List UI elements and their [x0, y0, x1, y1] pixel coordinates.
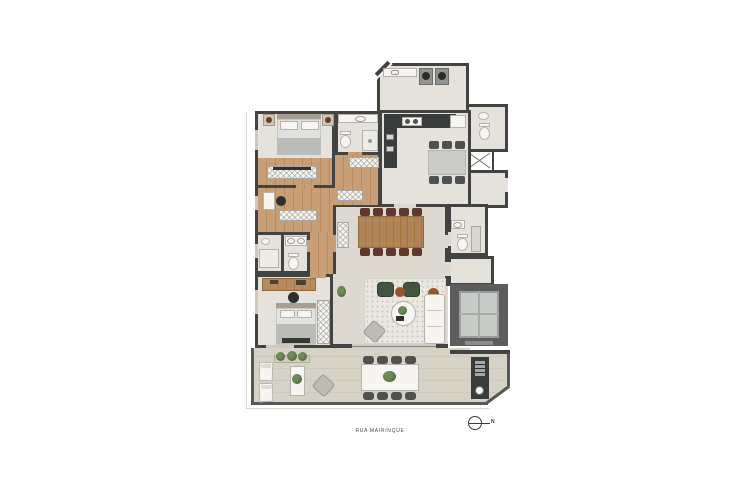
- planter-plant: [276, 352, 285, 361]
- lamp-icon: [325, 117, 331, 123]
- shaft-x-icon: [468, 152, 491, 169]
- elevator-door: [465, 341, 493, 345]
- bath3-toilet-bowl: [288, 257, 299, 270]
- terrace-chair: [377, 392, 388, 400]
- coffee-table-plant: [398, 306, 407, 315]
- table-centerpiece-plant: [383, 371, 396, 382]
- hall-desk-chair: [276, 196, 286, 206]
- north-line: [469, 423, 490, 424]
- terrace-chair: [405, 392, 416, 400]
- powder-room: [448, 204, 488, 256]
- kitchen-chair: [429, 141, 439, 149]
- bed2-foot-bench: [282, 338, 310, 343]
- terrace-chair: [405, 356, 416, 364]
- laundry-sink: [391, 70, 399, 75]
- dining-chair: [386, 208, 396, 216]
- entry-foyer: [466, 170, 508, 208]
- living-plant: [337, 286, 346, 297]
- bed2-pillow: [280, 310, 295, 318]
- powder-cabinet: [471, 226, 481, 252]
- bath2-sink: [261, 238, 270, 245]
- bbq-sink: [475, 386, 484, 395]
- laundry-counter: [383, 68, 417, 77]
- kitchen-chair: [455, 141, 465, 149]
- oven-icon: [386, 146, 394, 152]
- tv-icon: [273, 167, 311, 170]
- north-label: N: [491, 419, 495, 425]
- terrace-chair: [377, 356, 388, 364]
- terrace-chair: [391, 392, 402, 400]
- hall-desk: [263, 192, 275, 210]
- elevator-car-line: [478, 291, 480, 338]
- dining-chair: [386, 248, 396, 256]
- sofa-cushion-line: [427, 310, 442, 311]
- dining-chair: [360, 248, 370, 256]
- sliding-door-line: [352, 346, 436, 347]
- bed2-pillow: [297, 310, 312, 318]
- bath3-sink: [297, 238, 305, 244]
- sofa-cushion-line: [427, 326, 442, 327]
- living-sideboard: [337, 222, 349, 248]
- wardrobe-cabinet: [317, 300, 330, 344]
- bath3-sink: [287, 238, 295, 244]
- terrace-railing-right: [507, 352, 510, 386]
- shower-drain-icon: [368, 139, 372, 143]
- bedroom2-desk-chair: [288, 292, 299, 303]
- dryer-drum-icon: [438, 72, 446, 80]
- sofa: [424, 294, 445, 344]
- dining-chair: [399, 248, 409, 256]
- wall-segment: [281, 235, 284, 271]
- lot-line-left: [246, 112, 247, 408]
- floorplan-page: RUA MAIRINQUE N: [0, 0, 750, 480]
- window-opening: [255, 244, 258, 258]
- kitchen-chair: [455, 176, 465, 184]
- planter-plant: [287, 351, 297, 361]
- kitchen-chair: [429, 176, 439, 184]
- window-opening: [255, 196, 258, 210]
- window-opening: [255, 290, 258, 314]
- armchair-green: [377, 282, 394, 297]
- kitchen-chair: [442, 141, 452, 149]
- hallway-living-opening: [333, 235, 336, 252]
- bath2-shower: [259, 249, 279, 268]
- armchair-green: [403, 282, 420, 297]
- master-sink: [355, 116, 366, 122]
- lounger-pillow: [261, 364, 271, 368]
- oven-icon: [386, 134, 394, 140]
- lounger-pillow: [261, 385, 271, 389]
- washer-drum-icon: [422, 72, 430, 80]
- master-bed-blanket: [277, 138, 321, 155]
- terrace-railing-left: [251, 348, 254, 405]
- breakfast-table: [428, 150, 466, 175]
- dining-chair: [373, 208, 383, 216]
- wardrobe-cabinet: [337, 190, 363, 201]
- elevator-hall: [448, 256, 494, 286]
- hall-door-opening: [448, 262, 451, 276]
- planter-plant: [298, 352, 307, 361]
- desk-item: [270, 280, 278, 284]
- dining-chair: [412, 208, 422, 216]
- foyer-door-opening: [505, 178, 508, 192]
- dining-table: [358, 216, 424, 248]
- console-plant: [292, 374, 302, 384]
- grill-icon: [475, 361, 485, 376]
- fridge: [450, 115, 466, 128]
- street-label: RUA MAIRINQUE: [330, 428, 430, 434]
- window-opening: [255, 130, 258, 150]
- bath-door-opening: [307, 240, 310, 252]
- wall-segment: [333, 205, 336, 235]
- terrace-chair: [391, 356, 402, 364]
- burner-icon: [413, 119, 418, 124]
- side-table-rust: [395, 287, 405, 297]
- terrace-railing-bottom: [251, 402, 488, 405]
- dining-chair: [399, 208, 409, 216]
- wall-segment: [333, 252, 336, 274]
- hallway-south: [310, 232, 333, 274]
- powder-sink: [453, 222, 462, 228]
- kitchen-chair: [442, 176, 452, 184]
- desk-item: [296, 280, 306, 285]
- burner-icon: [405, 119, 410, 124]
- service-bath-sink: [478, 112, 489, 120]
- dining-chair: [360, 208, 370, 216]
- dining-chair: [373, 248, 383, 256]
- service-toilet-bowl: [479, 127, 490, 140]
- master-bed-pillow: [301, 121, 319, 130]
- terrace-chair: [363, 356, 374, 364]
- wardrobe-cabinet: [349, 157, 379, 168]
- lot-line-bottom: [246, 408, 512, 409]
- coffee-table-books: [396, 316, 404, 321]
- master-toilet-bowl: [340, 135, 351, 148]
- powder-door-opening: [448, 232, 451, 246]
- bedroom2-door-opening: [310, 274, 326, 278]
- dining-chair: [412, 248, 422, 256]
- hall-console: [279, 210, 317, 221]
- terrace-chair: [363, 392, 374, 400]
- lamp-icon: [266, 117, 272, 123]
- wall-segment: [450, 350, 510, 354]
- master-bed-pillow: [280, 121, 298, 130]
- north-arrow-icon: N: [468, 416, 498, 432]
- powder-toilet-bowl: [457, 238, 468, 251]
- wall-segment: [255, 188, 258, 234]
